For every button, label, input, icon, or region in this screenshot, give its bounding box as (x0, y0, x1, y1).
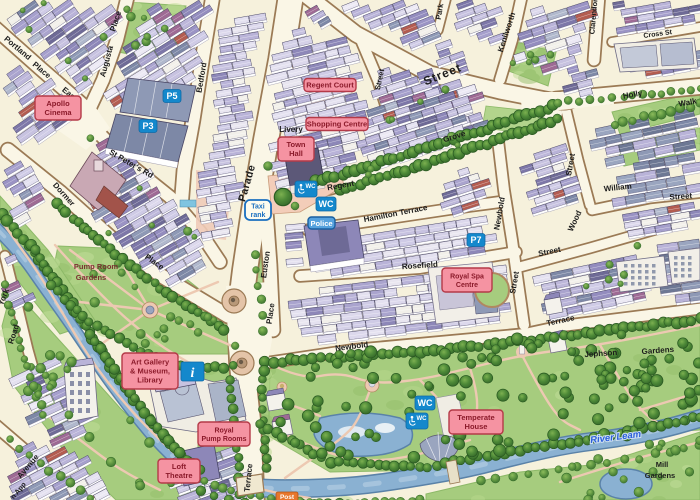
svg-text:& Museum,: & Museum, (130, 367, 170, 376)
svg-text:Police: Police (310, 219, 332, 228)
svg-text:Pump Rooms: Pump Rooms (201, 436, 246, 443)
svg-text:Temperate: Temperate (457, 413, 494, 422)
svg-text:rank: rank (251, 212, 266, 219)
svg-text:Royal: Royal (214, 427, 233, 434)
svg-text:Regent Court: Regent Court (306, 81, 354, 90)
svg-text:Cinema: Cinema (44, 108, 72, 117)
svg-text:Royal Spa: Royal Spa (450, 273, 484, 280)
svg-text:WC: WC (418, 398, 433, 408)
svg-text:Gardens: Gardens (645, 471, 675, 480)
svg-text:Mill: Mill (656, 460, 669, 469)
svg-text:P7: P7 (470, 235, 481, 245)
svg-text:Apollo: Apollo (46, 99, 70, 108)
svg-text:Taxi: Taxi (251, 204, 265, 211)
svg-text:Street: Street (669, 191, 693, 202)
svg-text:WC: WC (319, 199, 334, 209)
svg-text:P5: P5 (166, 91, 177, 101)
svg-text:Pump Room: Pump Room (74, 262, 118, 271)
svg-text:P3: P3 (142, 121, 153, 131)
svg-text:Town: Town (286, 140, 305, 149)
svg-text:Art Gallery: Art Gallery (131, 358, 170, 367)
svg-text:WC: WC (306, 184, 317, 190)
svg-text:Centre: Centre (456, 282, 478, 289)
svg-text:Loft: Loft (172, 462, 187, 471)
svg-text:House: House (465, 422, 488, 431)
svg-text:i: i (191, 366, 195, 381)
svg-text:Library: Library (137, 376, 163, 385)
svg-text:Gardens: Gardens (76, 273, 106, 282)
svg-text:Theatre: Theatre (165, 471, 192, 480)
svg-text:Livery: Livery (279, 125, 303, 134)
svg-text:Post: Post (280, 494, 295, 500)
svg-text:Shopping Centre: Shopping Centre (307, 120, 367, 129)
svg-text:Hall: Hall (289, 149, 303, 158)
svg-text:WC: WC (417, 416, 428, 422)
